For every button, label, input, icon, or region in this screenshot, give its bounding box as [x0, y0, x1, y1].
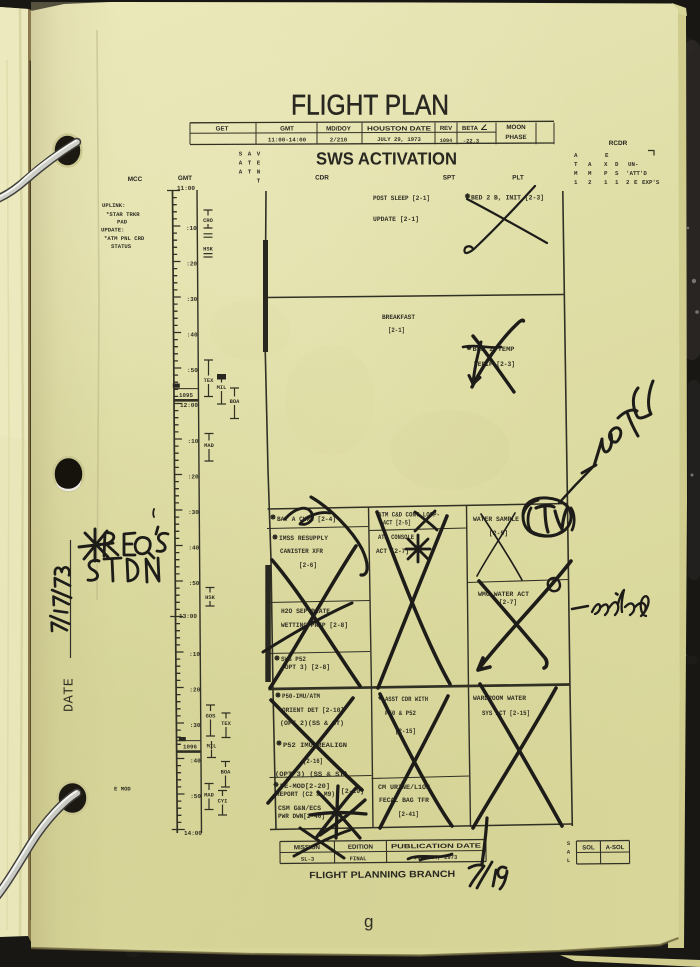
svg-text:A-SOL: A-SOL [606, 844, 625, 851]
svg-text:PLT: PLT [512, 175, 524, 182]
svg-text:PE-MOD[2-20]: PE-MOD[2-20] [280, 783, 330, 791]
svg-text:FLIGHT PLANNING BRANCH: FLIGHT PLANNING BRANCH [309, 869, 455, 880]
svg-text:CANISTER XFR: CANISTER XFR [280, 548, 323, 556]
svg-text:GET: GET [216, 125, 229, 132]
svg-text:A: A [248, 151, 252, 158]
svg-text:SWS ACTIVATION: SWS ACTIVATION [316, 149, 457, 169]
svg-text:MD/DOY: MD/DOY [326, 125, 352, 132]
svg-text:UPDATE:: UPDATE: [101, 227, 125, 234]
svg-text:MAD: MAD [204, 443, 214, 449]
svg-text:SL-3: SL-3 [301, 856, 315, 863]
svg-text:P: P [604, 170, 608, 177]
svg-text:(OPT 3) [2-8]: (OPT 3) [2-8] [281, 664, 330, 672]
svg-text:CDR: CDR [315, 175, 329, 182]
svg-text:L: L [567, 858, 570, 864]
svg-text:BETA: BETA [462, 125, 479, 132]
svg-text:GMT: GMT [280, 125, 294, 132]
svg-text:A: A [574, 152, 578, 159]
svg-text:-22.3: -22.3 [463, 138, 479, 144]
svg-text:MIL: MIL [217, 385, 227, 391]
svg-text:ACT [2-5]: ACT [2-5] [383, 520, 411, 528]
svg-text:UPDATE [2-1]: UPDATE [2-1] [373, 216, 419, 224]
svg-text:DATE: DATE [63, 678, 78, 712]
svg-text::50: :50 [187, 367, 198, 374]
svg-text::50: :50 [190, 793, 201, 800]
svg-text:D: D [615, 161, 619, 168]
svg-text:H2O SEP PLATE: H2O SEP PLATE [281, 608, 330, 616]
svg-text::20: :20 [188, 474, 199, 481]
svg-text:ASST CDR WITH: ASST CDR WITH [385, 696, 428, 704]
svg-text:11:00: 11:00 [177, 185, 195, 192]
svg-text:E MOD: E MOD [114, 786, 131, 793]
svg-text:E: E [605, 152, 609, 159]
svg-text:PUBLICATION DATE: PUBLICATION DATE [391, 843, 481, 851]
svg-text::30: :30 [190, 722, 201, 729]
svg-text:V: V [257, 151, 261, 158]
svg-text:CYI: CYI [218, 799, 228, 805]
svg-text:HSK: HSK [205, 595, 215, 601]
svg-text:FECAL BAG TFR: FECAL BAG TFR [379, 797, 429, 805]
svg-text:T: T [248, 160, 252, 167]
svg-text:FLIGHT PLAN: FLIGHT PLAN [291, 90, 449, 122]
svg-text:RCDR: RCDR [609, 140, 628, 147]
svg-text:S: S [615, 170, 619, 177]
svg-text:BOA: BOA [221, 770, 231, 776]
svg-text:WMC WATER ACT: WMC WATER ACT [478, 591, 529, 599]
svg-text::40: :40 [188, 545, 199, 552]
svg-text:EXP'S: EXP'S [642, 179, 660, 186]
svg-text:PHASE: PHASE [505, 134, 526, 141]
svg-text:MOON: MOON [506, 124, 526, 131]
svg-text:SYS ACT [2-15]: SYS ACT [2-15] [482, 710, 530, 718]
svg-text::20: :20 [186, 261, 197, 268]
svg-text:T: T [257, 178, 261, 185]
svg-text:BED 2 B, INIT [2-3]: BED 2 B, INIT [2-3] [471, 195, 544, 203]
svg-text::40: :40 [190, 758, 201, 765]
svg-text:'ATT'D: 'ATT'D [626, 170, 647, 177]
svg-text::10: :10 [186, 225, 197, 232]
svg-text:GMT: GMT [178, 175, 192, 182]
svg-text::20: :20 [189, 687, 200, 694]
svg-text:1: 1 [574, 179, 578, 186]
svg-text:HOUSTON DATE: HOUSTON DATE [367, 125, 431, 132]
svg-text:REPORT (C2 & M9): REPORT (C2 & M9) [276, 791, 335, 799]
svg-text:M: M [588, 170, 592, 177]
svg-text:*ATM PNL CRD: *ATM PNL CRD [104, 235, 145, 242]
svg-text:T: T [574, 161, 578, 168]
svg-text:E: E [257, 160, 261, 167]
svg-text:N: N [257, 169, 261, 176]
svg-text:[2-1]: [2-1] [388, 327, 405, 335]
svg-text::40: :40 [187, 332, 198, 339]
svg-text:1095: 1095 [179, 392, 193, 399]
svg-text:14:00: 14:00 [184, 830, 202, 837]
svg-text:(OPT 3) (SS & ST): (OPT 3) (SS & ST) [275, 771, 348, 779]
svg-text:UN-: UN- [628, 161, 638, 168]
svg-text:REV: REV [440, 125, 452, 132]
svg-text:P50-IMU/ATM: P50-IMU/ATM [282, 693, 320, 701]
svg-text:PAD: PAD [117, 219, 128, 226]
svg-text:UPLINK:: UPLINK: [102, 202, 126, 209]
svg-text:EDITION: EDITION [348, 844, 374, 851]
svg-text:POST SLEEP [2-1]: POST SLEEP [2-1] [373, 195, 430, 203]
svg-text:E: E [634, 179, 638, 186]
svg-text::30: :30 [188, 509, 199, 516]
svg-text:[2-6]: [2-6] [299, 562, 317, 570]
svg-text:*STAR TRKR: *STAR TRKR [106, 211, 140, 218]
svg-text::10: :10 [189, 651, 200, 658]
svg-text:A: A [239, 160, 243, 167]
svg-text:CSM G&N/ECS: CSM G&N/ECS [278, 805, 321, 813]
svg-text:SPT: SPT [443, 175, 456, 182]
svg-text:MAD: MAD [204, 793, 214, 799]
svg-text:IMSS RESUPPLY: IMSS RESUPPLY [279, 535, 328, 543]
svg-text:1094: 1094 [440, 138, 452, 144]
svg-text::30: :30 [186, 296, 197, 303]
svg-text:A: A [588, 161, 592, 168]
svg-text:11:00-14:00: 11:00-14:00 [268, 137, 307, 144]
svg-text:GOS: GOS [206, 714, 216, 720]
svg-text:12:00: 12:00 [180, 402, 198, 409]
svg-text:2: 2 [626, 179, 630, 186]
svg-text:TEX: TEX [221, 721, 231, 727]
svg-text:13:00: 13:00 [179, 613, 197, 620]
svg-text:S: S [239, 151, 243, 158]
svg-text:g: g [364, 912, 373, 931]
svg-text:2: 2 [588, 179, 592, 186]
svg-text:STATUS: STATUS [111, 243, 132, 250]
svg-text:SOL: SOL [582, 844, 595, 851]
svg-text:1: 1 [615, 179, 619, 186]
svg-text:1096: 1096 [183, 744, 197, 751]
svg-text:BOA: BOA [230, 399, 240, 405]
svg-text:ORIENT DET [2-10]: ORIENT DET [2-10] [282, 707, 344, 715]
svg-text:[2-41]: [2-41] [398, 811, 419, 819]
svg-text::10: :10 [188, 438, 199, 445]
svg-text:X: X [604, 161, 608, 168]
svg-text:TEX: TEX [204, 378, 214, 384]
svg-text:FINAL: FINAL [350, 855, 367, 862]
svg-text:JULY 29, 1973: JULY 29, 1973 [377, 136, 421, 143]
svg-text:HSK: HSK [203, 247, 213, 253]
svg-text:A: A [239, 169, 243, 176]
svg-text:M: M [574, 170, 578, 177]
svg-text::50: :50 [189, 580, 200, 587]
svg-text:MCC: MCC [128, 176, 143, 183]
svg-text:BREAKFAST: BREAKFAST [382, 314, 415, 322]
svg-text:CRO: CRO [203, 218, 213, 224]
svg-text:2/210: 2/210 [330, 137, 348, 144]
svg-text:1: 1 [604, 179, 608, 186]
svg-text:WARDROOM WATER: WARDROOM WATER [473, 695, 526, 703]
svg-text:MIL: MIL [207, 744, 217, 750]
svg-text:T: T [248, 169, 252, 176]
